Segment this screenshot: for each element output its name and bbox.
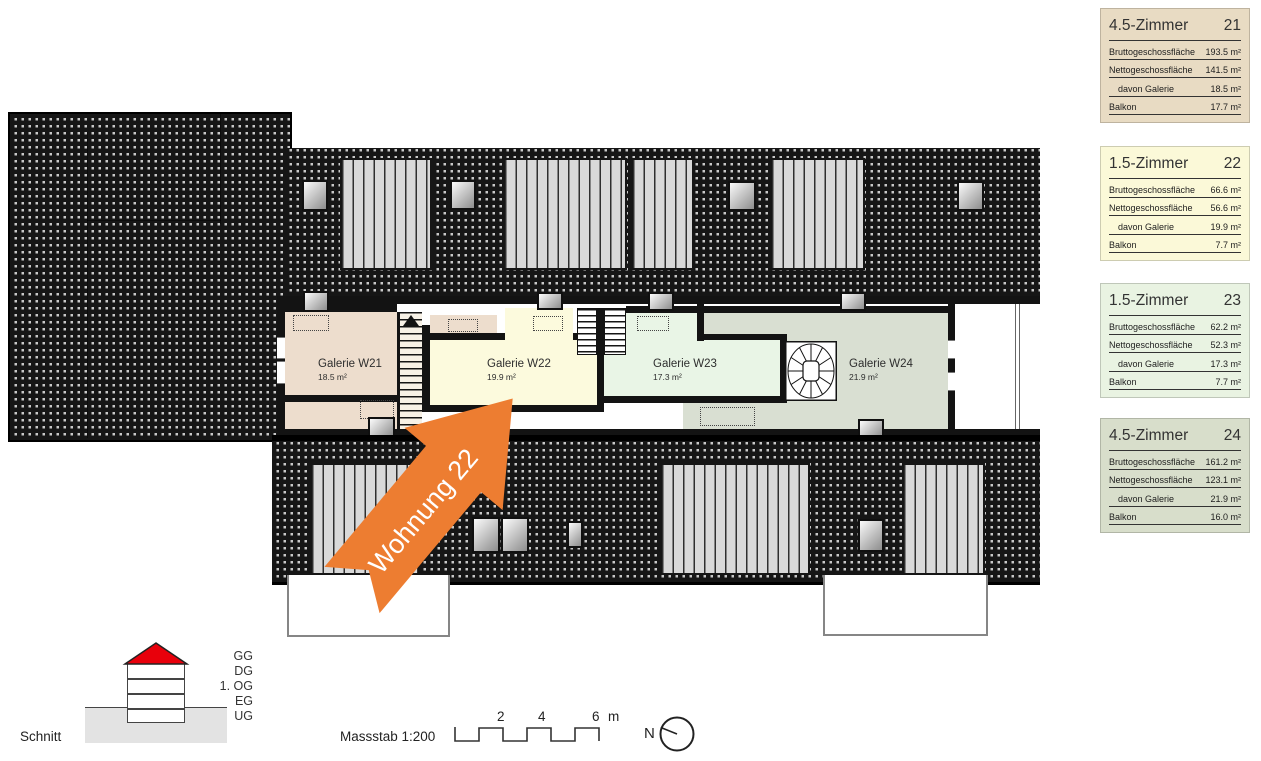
row-label: Nettogeschossfläche [1109, 475, 1193, 485]
row-value: 123.1 m² [1205, 475, 1241, 485]
void-railing [293, 315, 329, 331]
chimney [302, 180, 328, 211]
chimney [957, 181, 984, 211]
apartment-card-21[interactable]: 4.5-Zimmer 21 Bruttogeschossfläche193.5 … [1100, 8, 1250, 123]
row-value: 56.6 m² [1210, 203, 1241, 213]
row-value: 7.7 m² [1215, 377, 1241, 387]
level-dg: DG [205, 664, 253, 679]
row-value: 21.9 m² [1210, 494, 1241, 504]
card-row: davon Galerie19.9 m² [1109, 216, 1241, 235]
staircase-w23-flight [604, 308, 626, 355]
roof-window-panel [503, 158, 627, 270]
floor-line [128, 678, 184, 680]
card-title: 1.5-Zimmer 23 [1109, 284, 1241, 316]
balcony-rail [1015, 304, 1020, 429]
apartment-card-24[interactable]: 4.5-Zimmer 24 Bruttogeschossfläche161.2 … [1100, 418, 1250, 533]
row-value: 193.5 m² [1205, 47, 1241, 57]
roof-window-panel [631, 158, 694, 270]
dormer [823, 575, 988, 636]
scale-tick-6: 6 [592, 709, 600, 724]
row-value: 141.5 m² [1205, 65, 1241, 75]
void-railing [700, 407, 755, 426]
notch-wall-h [700, 334, 787, 340]
card-row: Bruttogeschossfläche66.6 m² [1109, 179, 1241, 198]
w24-top-wall [700, 306, 948, 313]
north-label: N [644, 725, 655, 742]
w23-bottom-wall [604, 396, 790, 403]
row-label: Balkon [1109, 512, 1137, 522]
void-railing [448, 319, 478, 332]
north-compass-icon [658, 715, 698, 755]
card-row: davon Galerie18.5 m² [1109, 78, 1241, 97]
chimney [728, 181, 756, 211]
level-ug: UG [205, 709, 253, 724]
void-railing [637, 316, 669, 331]
wohnung-22-arrow: Wohnung 22 [290, 380, 580, 615]
roof-ridge-line [87, 220, 221, 221]
floorplan-sheet: Galerie W21 18.5 m² Galerie W22 19.9 m² … [0, 0, 1261, 761]
chimney [840, 292, 866, 311]
chimney [450, 180, 476, 210]
level-1og: 1. OG [205, 679, 253, 694]
floor-line [128, 708, 184, 710]
apartment-type: 1.5-Zimmer [1109, 292, 1188, 310]
roof-window-panel [340, 158, 432, 270]
room-area: 21.9 m² [849, 371, 913, 384]
room-name: Galerie W23 [653, 358, 717, 371]
scale-tick-2: 2 [497, 709, 505, 724]
row-label: Nettogeschossfläche [1109, 65, 1193, 75]
row-value: 19.9 m² [1210, 222, 1241, 232]
row-label: Balkon [1109, 102, 1137, 112]
room-area: 17.3 m² [653, 371, 717, 384]
window [277, 361, 285, 384]
row-value: 17.7 m² [1210, 102, 1241, 112]
row-label: davon Galerie [1109, 222, 1174, 232]
level-eg: EG [205, 694, 253, 709]
row-value: 161.2 m² [1205, 457, 1241, 467]
scale-label: Massstab 1:200 [340, 729, 435, 744]
row-label: Nettogeschossfläche [1109, 203, 1193, 213]
card-row: Nettogeschossfläche52.3 m² [1109, 335, 1241, 354]
scale-tick-4: 4 [538, 709, 546, 724]
row-value: 18.5 m² [1210, 84, 1241, 94]
card-row: Nettogeschossfläche141.5 m² [1109, 60, 1241, 79]
roof-window-panel [902, 463, 985, 575]
card-row: Bruttogeschossfläche193.5 m² [1109, 41, 1241, 60]
section-levels: GG DG 1. OG EG UG [205, 649, 253, 724]
scale-bar [450, 720, 610, 748]
apartment-number: 21 [1224, 17, 1241, 35]
label-galerie-w23: Galerie W23 17.3 m² [653, 358, 717, 384]
roof-ridge-line [220, 114, 221, 224]
w21-top-wall [285, 304, 397, 312]
row-label: Nettogeschossfläche [1109, 340, 1193, 350]
room-name: Galerie W21 [318, 358, 382, 371]
window [948, 372, 955, 391]
row-label: davon Galerie [1109, 359, 1174, 369]
row-label: Bruttogeschossfläche [1109, 322, 1195, 332]
roof-window-panel [770, 158, 865, 270]
spiral-staircase [785, 341, 837, 401]
chimney [537, 292, 563, 310]
floor-line [128, 693, 184, 695]
void-railing [533, 316, 563, 331]
stair-direction-arrow [403, 315, 419, 326]
w22-right-wall [597, 308, 604, 412]
card-title: 1.5-Zimmer 22 [1109, 147, 1241, 179]
label-galerie-w24: Galerie W24 21.9 m² [849, 358, 913, 384]
row-label: davon Galerie [1109, 84, 1174, 94]
card-row: Balkon7.7 m² [1109, 372, 1241, 391]
row-label: Bruttogeschossfläche [1109, 457, 1195, 467]
card-row: Balkon7.7 m² [1109, 235, 1241, 254]
row-label: Bruttogeschossfläche [1109, 47, 1195, 57]
card-row: Nettogeschossfläche56.6 m² [1109, 198, 1241, 217]
row-label: Bruttogeschossfläche [1109, 185, 1195, 195]
window [948, 340, 955, 359]
level-gg: GG [205, 649, 253, 664]
apartment-card-22[interactable]: 1.5-Zimmer 22 Bruttogeschossfläche66.6 m… [1100, 146, 1250, 261]
card-row: Balkon16.0 m² [1109, 507, 1241, 526]
staircase-w22-flight [577, 308, 597, 355]
window [277, 337, 285, 359]
card-row: Balkon17.7 m² [1109, 97, 1241, 116]
apartment-number: 22 [1224, 155, 1241, 173]
w24-upper-notch [700, 313, 787, 334]
card-row: davon Galerie21.9 m² [1109, 488, 1241, 507]
card-row: Nettogeschossfläche123.1 m² [1109, 470, 1241, 489]
row-label: Balkon [1109, 377, 1137, 387]
chimney [858, 519, 884, 552]
row-label: Balkon [1109, 240, 1137, 250]
apartment-card-23[interactable]: 1.5-Zimmer 23 Bruttogeschossfläche62.2 m… [1100, 283, 1250, 398]
room-name: Galerie W22 [487, 358, 551, 371]
card-title: 4.5-Zimmer 24 [1109, 419, 1241, 451]
roof-window-panel [660, 463, 810, 575]
row-value: 7.7 m² [1215, 240, 1241, 250]
room-name: Galerie W24 [849, 358, 913, 371]
apartment-type: 1.5-Zimmer [1109, 155, 1188, 173]
card-title: 4.5-Zimmer 21 [1109, 9, 1241, 41]
section-house [127, 663, 185, 723]
row-value: 66.6 m² [1210, 185, 1241, 195]
apartment-number: 23 [1224, 292, 1241, 310]
scale-unit: m [608, 709, 619, 724]
card-row: davon Galerie17.3 m² [1109, 353, 1241, 372]
roof-ridge-line [87, 132, 88, 438]
card-row: Bruttogeschossfläche161.2 m² [1109, 451, 1241, 470]
chimney [648, 292, 674, 311]
w24-right-wall [948, 296, 955, 437]
row-value: 17.3 m² [1210, 359, 1241, 369]
section-roof-highlight [120, 640, 192, 666]
apartment-type: 4.5-Zimmer [1109, 17, 1188, 35]
left-roof-hatch [8, 112, 292, 442]
card-row: Bruttogeschossfläche62.2 m² [1109, 316, 1241, 335]
apartment-number: 24 [1224, 427, 1241, 445]
row-value: 16.0 m² [1210, 512, 1241, 522]
section-label: Schnitt [20, 729, 61, 744]
row-label: davon Galerie [1109, 494, 1174, 504]
w22-top-wall-left [422, 333, 505, 340]
apartment-type: 4.5-Zimmer [1109, 427, 1188, 445]
chimney [303, 291, 329, 312]
row-value: 62.2 m² [1210, 322, 1241, 332]
row-value: 52.3 m² [1210, 340, 1241, 350]
